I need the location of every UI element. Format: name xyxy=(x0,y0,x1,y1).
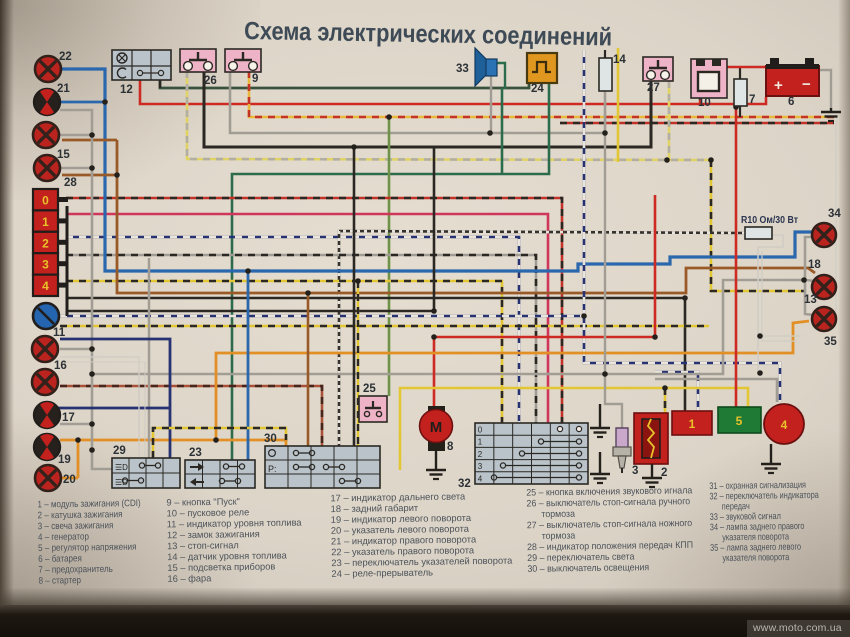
svg-text:5: 5 xyxy=(736,414,743,428)
svg-text:12: 12 xyxy=(120,84,133,96)
svg-text:16: 16 xyxy=(54,360,67,372)
svg-text:4: 4 xyxy=(781,418,788,432)
svg-text:27 – выключатель стоп-сигнала: 27 – выключатель стоп-сигнала ножного xyxy=(527,518,693,531)
svg-text:21: 21 xyxy=(57,83,70,95)
svg-text:15 – подсветка приборов: 15 – подсветка приборов xyxy=(167,561,275,573)
svg-text:4 – генератор: 4 – генератор xyxy=(38,531,89,542)
svg-text:26 – выключатель стоп-сигнала: 26 – выключатель стоп-сигнала ручного xyxy=(526,496,690,509)
svg-text:−: − xyxy=(802,76,811,93)
svg-text:6: 6 xyxy=(788,96,794,108)
svg-text:16 – фара: 16 – фара xyxy=(167,573,212,584)
svg-text:10 – пусковое реле: 10 – пусковое реле xyxy=(167,507,250,518)
svg-text:3: 3 xyxy=(478,462,483,471)
svg-text:28: 28 xyxy=(64,177,77,189)
svg-text:0: 0 xyxy=(42,194,49,208)
svg-text:13: 13 xyxy=(804,294,817,306)
svg-text:тормоза: тормоза xyxy=(527,508,576,519)
svg-text:30 – выключатель освещения: 30 – выключатель освещения xyxy=(527,562,649,574)
svg-text:14: 14 xyxy=(613,54,626,66)
svg-text:3 – свеча зажигания: 3 – свеча зажигания xyxy=(38,520,114,532)
svg-text:M: M xyxy=(430,419,443,436)
svg-text:24: 24 xyxy=(531,83,544,95)
svg-text:+: + xyxy=(774,77,783,94)
svg-text:1: 1 xyxy=(42,215,49,229)
svg-text:18: 18 xyxy=(808,259,821,271)
svg-text:Схема электрических соединений: Схема электрических соединений xyxy=(244,17,612,51)
svg-text:4: 4 xyxy=(42,279,49,293)
svg-text:9 – кнопка "Пуск": 9 – кнопка "Пуск" xyxy=(166,497,240,508)
svg-text:14 – датчик уровня топлива: 14 – датчик уровня топлива xyxy=(167,550,287,562)
svg-text:R10 Ом/30 Вт: R10 Ом/30 Вт xyxy=(741,215,798,226)
svg-text:26: 26 xyxy=(204,75,217,87)
svg-text:3: 3 xyxy=(632,465,638,477)
svg-text:7 – предохранитель: 7 – предохранитель xyxy=(38,563,113,575)
svg-text:28 – индикатор положения перед: 28 – индикатор положения передач КПП xyxy=(527,540,693,553)
svg-text:11: 11 xyxy=(53,327,66,339)
svg-text:1: 1 xyxy=(689,417,696,431)
svg-text:указателя поворота: указателя поворота xyxy=(710,551,789,563)
svg-text:29: 29 xyxy=(113,445,126,457)
svg-text:33: 33 xyxy=(456,63,469,75)
svg-text:0: 0 xyxy=(478,426,483,435)
svg-text:34: 34 xyxy=(828,208,841,220)
svg-text:30: 30 xyxy=(264,433,277,445)
svg-text:☰D: ☰D xyxy=(115,463,128,472)
svg-text:7: 7 xyxy=(749,94,755,106)
svg-text:17: 17 xyxy=(62,412,75,424)
svg-text:29 – переключатель света: 29 – переключатель света xyxy=(527,551,635,563)
svg-text:10: 10 xyxy=(698,97,711,109)
svg-text:15: 15 xyxy=(57,149,70,161)
svg-text:2: 2 xyxy=(478,450,483,459)
svg-text:19: 19 xyxy=(58,454,71,466)
svg-text:13 – стоп-сигнал: 13 – стоп-сигнал xyxy=(167,540,239,551)
svg-text:6 – батарея: 6 – батарея xyxy=(38,553,82,564)
svg-text:2: 2 xyxy=(42,236,49,250)
svg-text:22: 22 xyxy=(59,51,72,63)
svg-text:1: 1 xyxy=(478,438,483,447)
svg-text:24 – реле-прерыватель: 24 – реле-прерыватель xyxy=(331,566,433,578)
svg-text:27: 27 xyxy=(647,82,660,94)
svg-text:9: 9 xyxy=(252,73,258,85)
svg-text:P:: P: xyxy=(268,464,277,474)
svg-text:32: 32 xyxy=(458,478,471,490)
svg-text:23: 23 xyxy=(189,447,202,459)
svg-text:5 – регулятор напряжения: 5 – регулятор напряжения xyxy=(38,541,137,553)
svg-text:3: 3 xyxy=(42,258,49,272)
svg-text:35: 35 xyxy=(824,336,837,348)
svg-text:тормоза: тормоза xyxy=(527,530,576,541)
svg-text:8: 8 xyxy=(447,441,454,453)
svg-text:8 – стартер: 8 – стартер xyxy=(38,575,81,586)
svg-text:4: 4 xyxy=(478,474,483,483)
svg-text:1 – модуль зажигания (CDI): 1 – модуль зажигания (CDI) xyxy=(37,497,140,509)
svg-text:11 – индикатор уровня топлива: 11 – индикатор уровня топлива xyxy=(167,517,303,529)
svg-text:12 – замок зажигания: 12 – замок зажигания xyxy=(167,529,260,540)
svg-text:25: 25 xyxy=(363,383,376,395)
svg-text:20: 20 xyxy=(63,474,76,486)
